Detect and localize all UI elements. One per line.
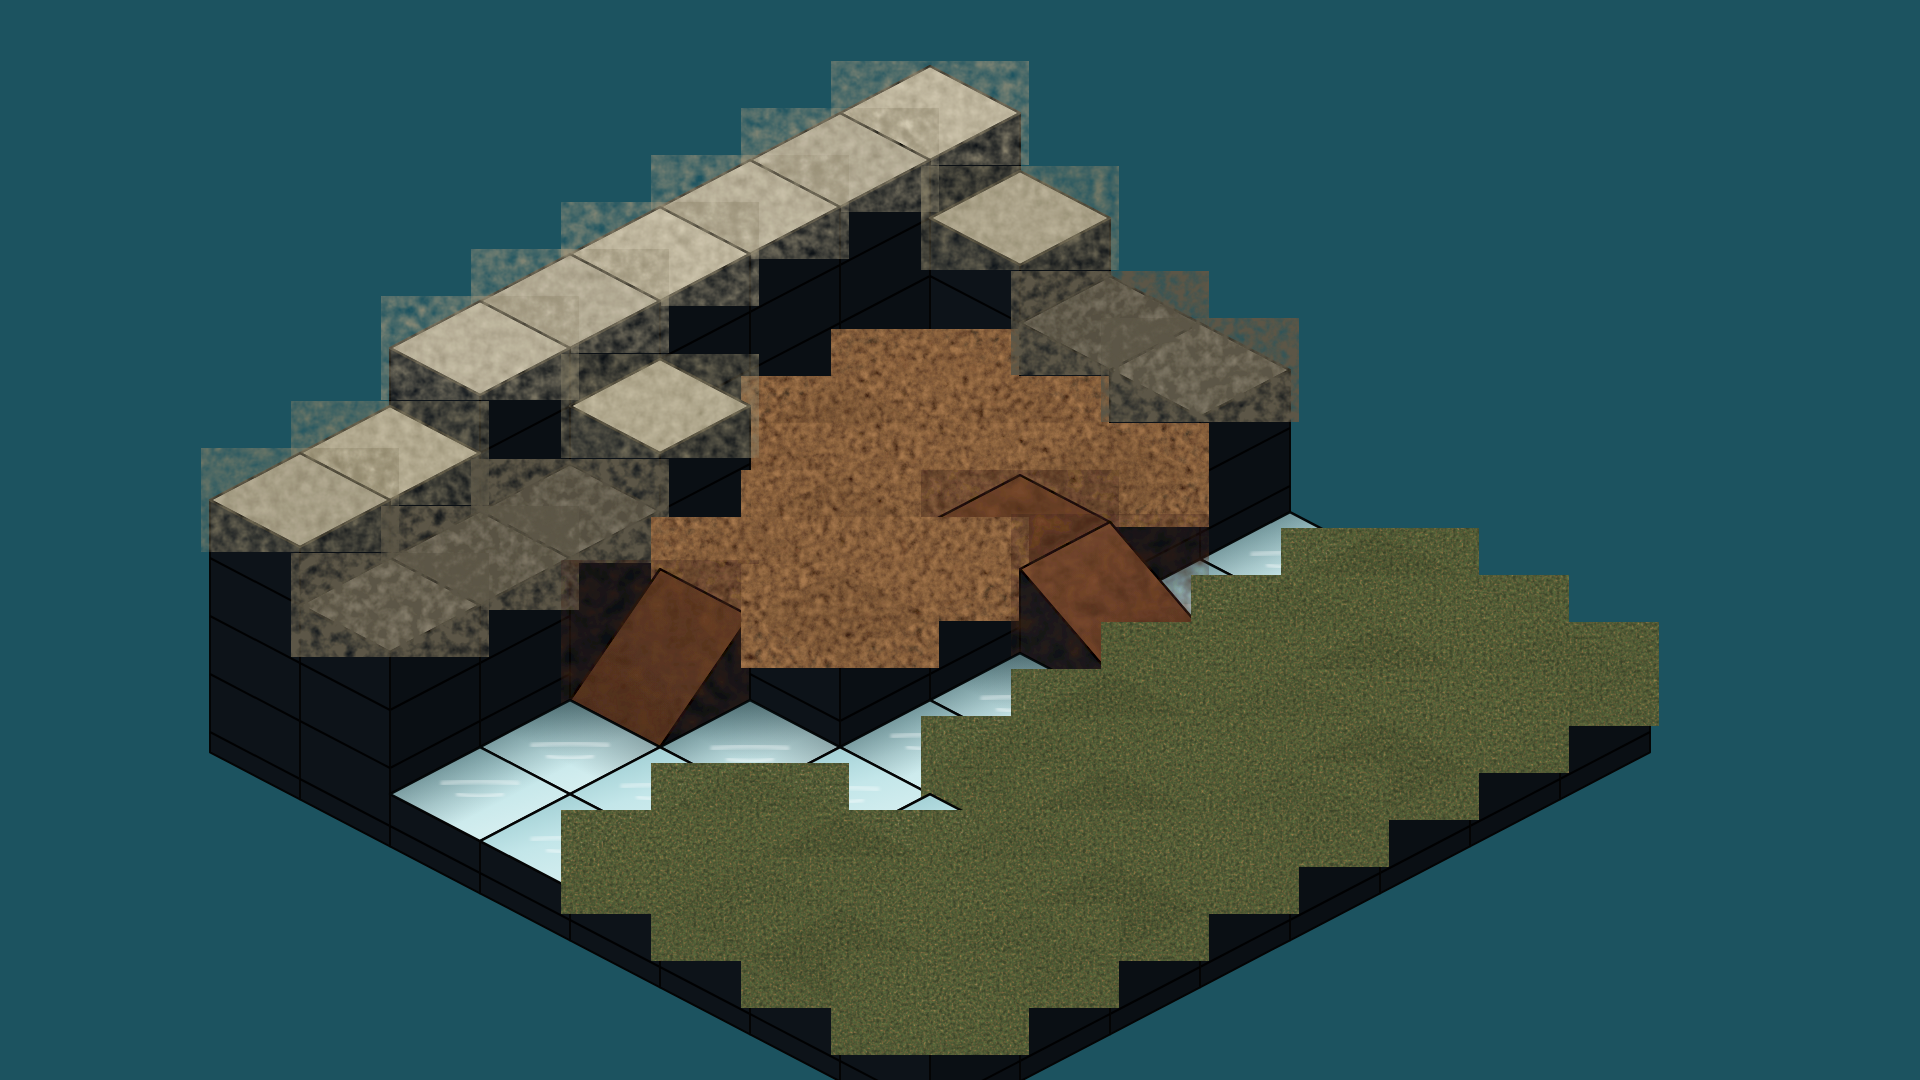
water-streak bbox=[803, 787, 877, 789]
water-streak bbox=[1253, 552, 1327, 554]
water-streak bbox=[443, 781, 517, 783]
water-streak bbox=[893, 828, 967, 830]
water-streak bbox=[983, 696, 1057, 698]
water-streak bbox=[533, 837, 607, 839]
water-streak bbox=[623, 784, 697, 786]
isometric-terrain-scene bbox=[0, 0, 1920, 1080]
water-streak bbox=[893, 734, 967, 736]
terrain-tiles bbox=[210, 66, 1650, 1080]
game-viewport bbox=[0, 0, 1920, 1080]
water-streak bbox=[713, 746, 787, 748]
water-streak bbox=[533, 743, 607, 745]
